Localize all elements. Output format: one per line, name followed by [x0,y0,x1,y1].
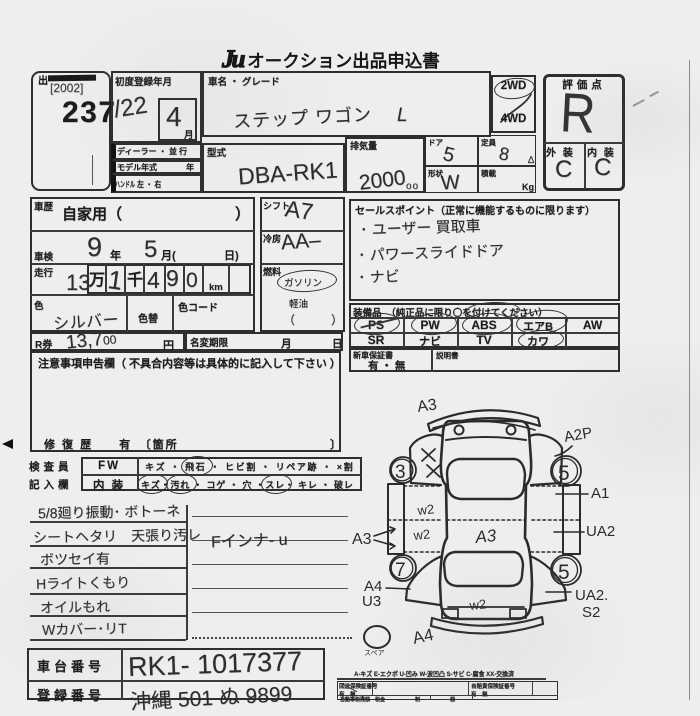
svg-text:5: 5 [558,462,570,485]
svg-text:UA2: UA2 [586,523,615,540]
svg-text:w2: w2 [416,501,435,518]
svg-text:S2: S2 [582,604,600,621]
svg-text:U3: U3 [362,593,381,610]
svg-text:A1: A1 [591,485,609,502]
svg-text:5: 5 [558,561,570,584]
svg-text:A3: A3 [416,396,438,416]
svg-text:3: 3 [395,462,406,483]
svg-text:w2: w2 [468,596,487,613]
svg-text:A4: A4 [411,625,435,648]
svg-text:A2P: A2P [563,424,594,446]
svg-text:7: 7 [395,560,406,581]
svg-text:UA2.: UA2. [575,587,608,604]
svg-text:スペア: スペア [364,649,385,657]
svg-text:A3: A3 [473,526,497,547]
svg-text:w2: w2 [412,526,431,543]
svg-text:A3: A3 [352,531,372,548]
